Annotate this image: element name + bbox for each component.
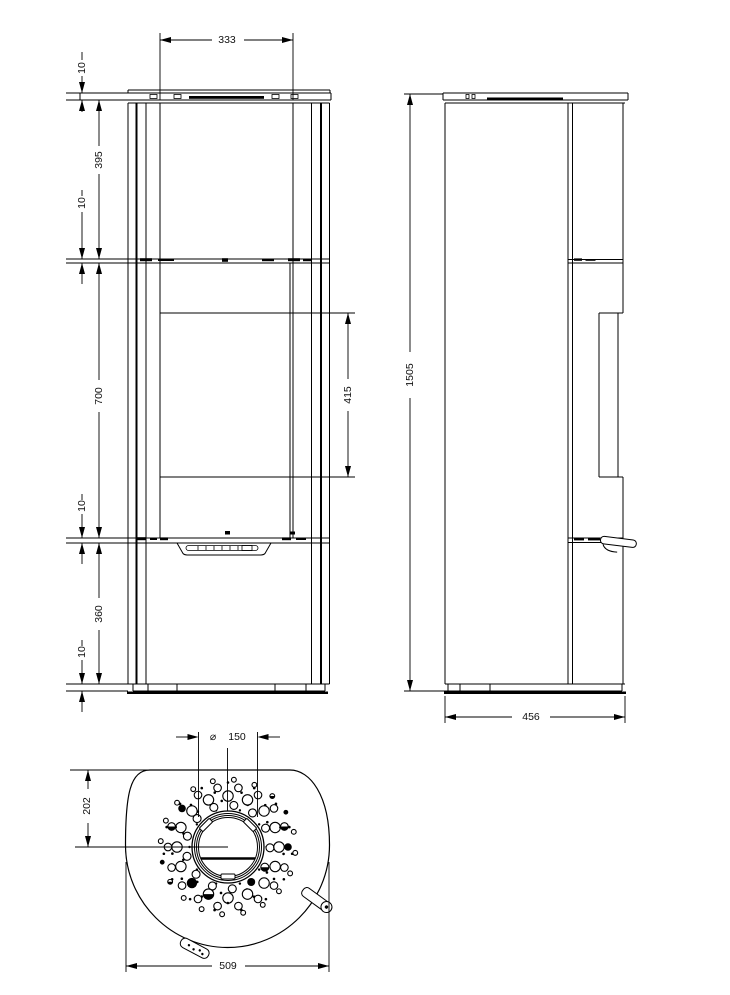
dim-label-depth-456: 456 bbox=[522, 711, 540, 723]
door-handle bbox=[599, 536, 636, 554]
diameter-symbol: ⌀ bbox=[210, 731, 216, 743]
dim-label-upper-395: 395 bbox=[93, 151, 105, 169]
dim-label-back-202: 202 bbox=[81, 797, 93, 815]
dim-label-lower-plate-10: 10 bbox=[76, 500, 88, 512]
dim-label-glass-415: 415 bbox=[342, 386, 354, 404]
dim-label-height-1505: 1505 bbox=[404, 363, 416, 387]
dim-label-base-10: 10 bbox=[76, 646, 88, 658]
dim-label-top-plate-10: 10 bbox=[76, 62, 88, 74]
badge-tab bbox=[179, 937, 211, 960]
dimension-arrowheads bbox=[79, 37, 625, 969]
front-view bbox=[66, 90, 331, 693]
ash-lip bbox=[177, 543, 271, 555]
dim-label-flue-150: 150 bbox=[228, 731, 246, 743]
top-vent-slot bbox=[189, 96, 264, 99]
dim-label-top-width: 333 bbox=[218, 34, 236, 46]
dim-label-mid-plate-10: 10 bbox=[76, 197, 88, 209]
technical-drawing: 333 10 395 10 700 10 360 10 415 1505 456… bbox=[0, 0, 730, 995]
dim-label-door-700: 700 bbox=[93, 387, 105, 405]
side-view bbox=[443, 93, 637, 693]
dim-label-lower-360: 360 bbox=[93, 605, 105, 623]
top-view bbox=[126, 770, 335, 960]
drawing-sheet: 333 10 395 10 700 10 360 10 415 1505 456… bbox=[0, 0, 730, 995]
dimension-annotations: 333 10 395 10 700 10 360 10 415 1505 456… bbox=[70, 33, 625, 972]
dim-label-width-509: 509 bbox=[219, 960, 237, 972]
